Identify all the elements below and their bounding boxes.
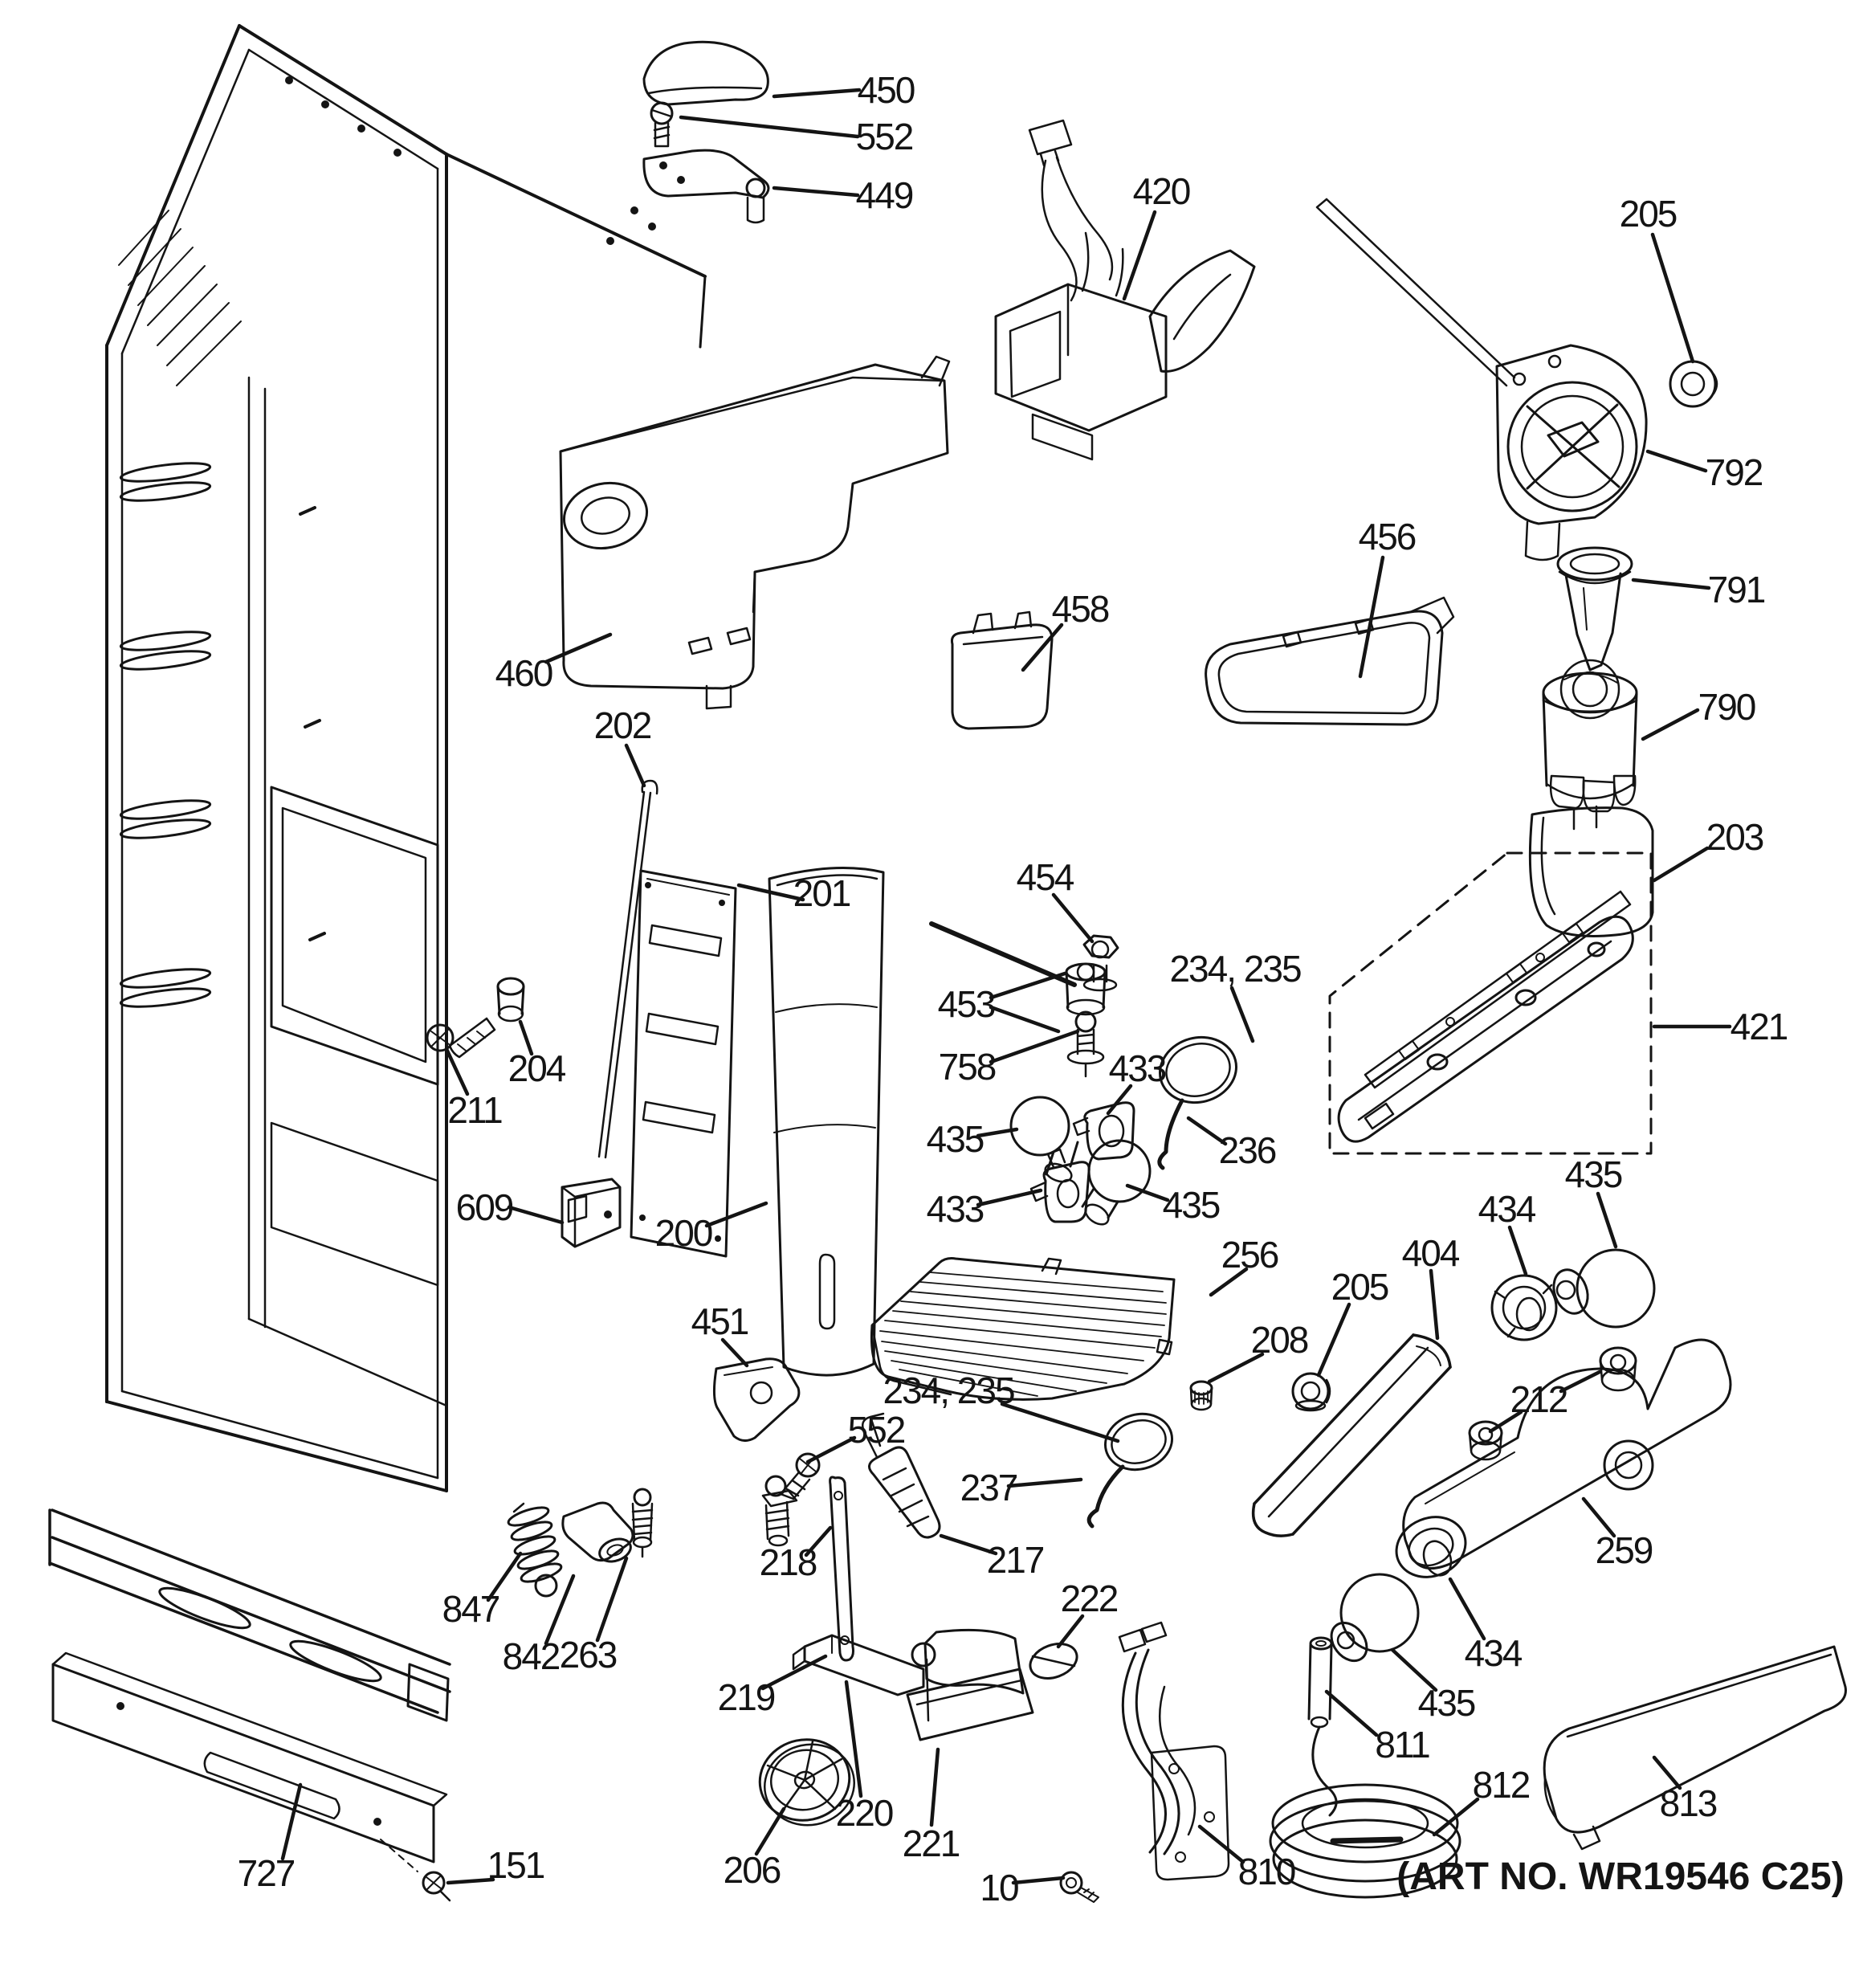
- callout-label-435-c: 435: [1565, 1153, 1622, 1195]
- callout-label-10: 10: [980, 1867, 1018, 1908]
- callout-leader-450: [774, 90, 859, 96]
- callout-label-151: 151: [487, 1844, 544, 1886]
- part-cabinet-floor-1: [122, 1391, 438, 1478]
- part-trim-stud-1: [1428, 1055, 1447, 1069]
- part-shelf-bracket-4b: [120, 985, 210, 1010]
- part-trim-stud-3: [1588, 943, 1604, 956]
- part-corner-dot-1: [630, 206, 638, 214]
- part-bracket-451: [714, 1359, 798, 1441]
- part-nut-208-body: [1191, 1388, 1212, 1404]
- callout-label-234-235-a: 234, 235: [1169, 948, 1300, 990]
- part-standpipe-hole: [1316, 1641, 1326, 1646]
- part-screw-10-head: [1061, 1872, 1082, 1893]
- part-bulb-435d: [1341, 1574, 1418, 1651]
- callout-label-435-a: 435: [927, 1118, 984, 1160]
- callout-label-202: 202: [594, 704, 651, 746]
- part-trim-strip-line: [1359, 941, 1611, 1120]
- callout-leader-434-a: [1510, 1227, 1526, 1274]
- part-louver-hole-4: [715, 1235, 721, 1242]
- part-top-face-dot-1: [285, 76, 293, 84]
- part-base-grille-line: [1567, 1655, 1831, 1737]
- part-socket-434a-cup: [1517, 1298, 1541, 1330]
- part-center-cover: [769, 868, 883, 1376]
- part-cabinet-recess-outer: [271, 787, 438, 1084]
- part-filter-bottom: [1547, 784, 1633, 798]
- part-filter-body-r: [1633, 694, 1637, 786]
- part-air-duct-outer: [561, 365, 948, 688]
- part-hatch-3: [138, 247, 193, 305]
- part-switch-609-btn: [569, 1196, 586, 1222]
- part-cabinet-inner-left-slant: [122, 50, 249, 353]
- part-bracket-451-hole: [751, 1382, 772, 1403]
- callout-leader-10: [1013, 1878, 1063, 1883]
- part-grommet-top-hole: [1682, 373, 1704, 395]
- callout-leader-420: [1124, 212, 1155, 299]
- callout-label-205-top: 205: [1620, 193, 1677, 235]
- part-vent-spoke-5: [805, 1780, 835, 1809]
- part-shelf-bracket-2a: [120, 628, 210, 654]
- callout-leader-792: [1648, 451, 1706, 471]
- callout-label-813: 813: [1660, 1782, 1717, 1824]
- callout-label-236: 236: [1219, 1129, 1276, 1171]
- callout-leader-454: [1054, 895, 1092, 941]
- part-shelf-bracket-3a: [120, 797, 210, 823]
- part-screw-10-shaft: [1078, 1888, 1099, 1902]
- part-fill-tube: [1317, 199, 1514, 386]
- part-cabinet-recess-inner: [283, 808, 426, 1062]
- part-base-rail-slot-1: [156, 1581, 253, 1635]
- part-grommet-mid-hole: [1302, 1382, 1319, 1400]
- art-number: (ART NO. WR19546 C25): [1396, 1855, 1844, 1898]
- part-cabinet-bottom-edge: [107, 1402, 446, 1491]
- part-socket-434b-cup: [1419, 1537, 1456, 1580]
- part-cabinet-floor-2: [249, 1319, 446, 1406]
- part-screw-552-top-slot: [652, 110, 671, 116]
- part-icemaker-window: [1010, 312, 1060, 397]
- part-grommet-212a-hole: [1611, 1355, 1625, 1370]
- callout-label-435-b: 435: [1163, 1184, 1220, 1226]
- callout-leader-203: [1654, 848, 1707, 880]
- part-center-cover-arc-2: [774, 1125, 875, 1133]
- callout-leader-200: [707, 1203, 766, 1226]
- callout-label-201: 201: [793, 872, 850, 914]
- part-grille-hatch-2: [920, 1282, 1166, 1303]
- callout-leader-206: [756, 1809, 784, 1854]
- part-icemaker-wire-3: [1082, 233, 1123, 296]
- part-door-stop: [644, 42, 768, 104]
- part-screw-10-hole: [1066, 1878, 1076, 1888]
- callout-leader-263: [597, 1558, 626, 1640]
- part-hinge-pin-collar: [747, 179, 764, 197]
- part-sleeve-204-top: [498, 978, 524, 994]
- part-filter-head-tab: [1526, 522, 1559, 560]
- callout-leader-435-c: [1598, 1194, 1616, 1247]
- part-cabinet-top-edge: [239, 26, 446, 154]
- callout-leader-460: [546, 635, 610, 662]
- part-strap-219: [830, 1477, 854, 1660]
- callout-label-811: 811: [1375, 1724, 1429, 1766]
- part-kick-panel-hole-2: [373, 1818, 381, 1826]
- callout-leader-758: [991, 1031, 1078, 1062]
- part-tube-810-hole-2: [1205, 1812, 1214, 1822]
- part-cabinet-floor-recess: [271, 1123, 438, 1285]
- part-filter-head-hole-2: [1549, 356, 1560, 367]
- part-bulb-435c: [1577, 1250, 1654, 1327]
- part-standpipe-top: [1311, 1638, 1331, 1649]
- part-icemaker-body: [996, 284, 1166, 431]
- callout-label-810: 810: [1238, 1851, 1295, 1892]
- part-oring-lower-tail: [1089, 1467, 1123, 1526]
- callout-label-259: 259: [1596, 1529, 1653, 1571]
- part-lamp-cover-key: [1604, 1441, 1653, 1489]
- part-plunger-263-tip: [634, 1489, 650, 1505]
- part-tube-union-top: [1066, 964, 1105, 980]
- part-switch-609-top: [562, 1187, 620, 1247]
- part-bulb-435a: [1011, 1097, 1069, 1155]
- part-corner-dot-2: [648, 222, 656, 231]
- part-socket-433b-cup: [1058, 1180, 1078, 1207]
- part-tube-frame-inner: [1219, 623, 1429, 713]
- part-socket-433b: [1044, 1162, 1089, 1222]
- part-air-duct-opening: [558, 476, 653, 556]
- callout-label-434-a: 434: [1478, 1188, 1536, 1230]
- part-tube-810-conn-1: [1119, 1630, 1145, 1651]
- callout-label-791: 791: [1708, 569, 1765, 610]
- part-hinge-hole-1: [659, 161, 667, 169]
- callout-label-203: 203: [1706, 816, 1763, 858]
- callout-label-435-d: 435: [1418, 1682, 1475, 1724]
- part-top-face-dot-4: [393, 149, 402, 157]
- part-socket-434a: [1492, 1276, 1556, 1340]
- part-hinge-hole-2: [677, 176, 685, 184]
- callout-leader-202: [626, 745, 644, 786]
- part-bulb-435c-tip: [1557, 1281, 1575, 1299]
- callout-leader-237: [1009, 1480, 1081, 1486]
- part-pcb-hole-2: [1536, 953, 1544, 961]
- part-kick-panel-hole-1: [116, 1702, 124, 1710]
- part-coil-1: [1273, 1785, 1457, 1862]
- part-sleeve-204-base: [499, 1006, 523, 1021]
- part-strap-219-hole-1: [834, 1492, 842, 1500]
- callout-label-263: 263: [560, 1634, 617, 1676]
- part-auger-217: [869, 1447, 940, 1537]
- part-tube-810-conn-2: [1142, 1623, 1166, 1642]
- part-cabinet-inner-top: [249, 50, 438, 169]
- callout-leader-205-mid: [1319, 1304, 1349, 1375]
- callout-leader-453-1: [991, 974, 1065, 998]
- part-lamp-shade-bottom: [1293, 1367, 1450, 1534]
- callout-label-212: 212: [1510, 1378, 1567, 1420]
- part-top-face-dot-3: [357, 125, 365, 133]
- part-louver-hole-3: [639, 1214, 646, 1221]
- callout-label-220: 220: [836, 1792, 893, 1834]
- callout-leader-433-a: [1108, 1086, 1131, 1113]
- callout-label-421: 421: [1731, 1006, 1788, 1047]
- callout-leader-453-2: [991, 1007, 1058, 1031]
- part-icemaker-wire-2: [1057, 157, 1112, 280]
- callout-leader-449: [774, 188, 858, 195]
- callout-label-456: 456: [1359, 516, 1416, 557]
- callout-label-234-235-b: 234, 235: [883, 1370, 1013, 1411]
- part-tube-frame-outer: [1206, 611, 1442, 725]
- callout-leader-434-b: [1450, 1579, 1484, 1639]
- callout-label-256: 256: [1221, 1234, 1278, 1276]
- part-grille-tab: [1042, 1259, 1061, 1274]
- callout-label-200: 200: [655, 1212, 712, 1254]
- part-duct-cover-line: [964, 637, 1042, 644]
- part-top-face-dot-2: [321, 100, 329, 108]
- callout-label-758: 758: [939, 1046, 996, 1088]
- part-lamp-shade-inner: [1269, 1348, 1428, 1517]
- part-coil-center: [1333, 1839, 1400, 1841]
- part-hatch-5: [157, 284, 217, 345]
- part-air-duct-top-line: [561, 378, 944, 451]
- part-cabinet-right-wall-end: [700, 276, 705, 347]
- part-screw-151-tip: [440, 1891, 450, 1900]
- callout-label-205-mid: 205: [1331, 1266, 1388, 1308]
- part-lever-842-roller2: [606, 1543, 625, 1557]
- part-grommet-top: [1670, 361, 1715, 406]
- callout-label-420: 420: [1133, 170, 1190, 212]
- callout-label-434-b: 434: [1465, 1632, 1523, 1674]
- part-center-cover-slot: [820, 1255, 834, 1329]
- part-icemaker-connector: [1029, 120, 1071, 165]
- callout-leader-811: [1327, 1692, 1376, 1735]
- part-socket-434a-tick-3: [1508, 1329, 1514, 1337]
- callout-label-847: 847: [442, 1588, 499, 1630]
- part-switch-609-dot: [604, 1210, 612, 1219]
- part-oval-222-line: [1033, 1656, 1074, 1666]
- part-hatch-4: [148, 266, 205, 325]
- callout-label-211: 211: [447, 1089, 502, 1131]
- part-standpipe-body: [1309, 1645, 1331, 1719]
- part-dispenser-knob: [912, 1643, 935, 1666]
- callout-leader-790: [1643, 710, 1698, 739]
- part-air-duct-opening2: [578, 493, 633, 538]
- part-icemaker-wire-1: [1042, 161, 1077, 300]
- part-grille-hatch-5: [893, 1311, 1161, 1337]
- part-louver-hole-1: [645, 882, 651, 888]
- part-louver-panel: [631, 871, 736, 1256]
- part-funnel-rim2: [1571, 554, 1619, 574]
- callout-label-208: 208: [1251, 1319, 1308, 1361]
- part-bulb-435c-neck: [1548, 1265, 1594, 1318]
- part-funnel-line: [1584, 588, 1587, 630]
- callout-label-842: 842: [503, 1635, 560, 1677]
- part-louver-2: [646, 1014, 718, 1044]
- part-hatch-6: [167, 303, 229, 365]
- callout-leader-791: [1633, 580, 1709, 588]
- callout-leader-810: [1200, 1827, 1243, 1862]
- part-filter-foot-1: [1551, 776, 1584, 808]
- parts-diagram-svg: 4505524494202057927914567902034214602024…: [0, 0, 1863, 1988]
- callout-label-449: 449: [856, 174, 913, 216]
- part-standpipe-foot: [1311, 1717, 1327, 1727]
- part-shelf-bracket-1b: [120, 479, 210, 504]
- part-plunger-263-base: [634, 1537, 651, 1547]
- part-grille-hatch-3: [911, 1292, 1166, 1314]
- part-tube-810-plate: [1152, 1746, 1229, 1880]
- part-hinge-rod: [599, 781, 657, 1157]
- part-dispenser-rod: [927, 1659, 928, 1721]
- part-valve-218-body: [766, 1502, 789, 1539]
- part-funnel-body: [1566, 574, 1620, 670]
- part-screw-552-top-shaft: [654, 123, 669, 146]
- part-tube-union-hole: [1078, 964, 1094, 980]
- callout-leader-552-top: [681, 117, 858, 137]
- callout-label-454: 454: [1017, 856, 1074, 898]
- part-louver-1: [650, 925, 721, 956]
- callout-label-552-mid: 552: [848, 1409, 905, 1451]
- callout-leader-458: [1023, 625, 1062, 670]
- callout-label-453: 453: [938, 983, 995, 1025]
- part-lamp-shade-right: [1413, 1335, 1450, 1367]
- part-grille-hatch-4: [901, 1301, 1164, 1325]
- callout-label-217: 217: [987, 1539, 1044, 1581]
- callout-leader-451: [723, 1340, 747, 1365]
- part-wall-slot-3: [310, 933, 324, 940]
- part-plunger-263-body: [633, 1504, 652, 1541]
- callout-label-458: 458: [1052, 588, 1109, 630]
- part-filter-swirl-2: [1573, 672, 1607, 706]
- callout-leader-609: [509, 1207, 562, 1223]
- callout-label-792: 792: [1706, 451, 1763, 493]
- callout-leader-221: [931, 1749, 938, 1825]
- part-filter-body-l: [1543, 694, 1547, 786]
- part-filter-head-hub: [1548, 423, 1598, 456]
- part-bulb-435b: [1089, 1141, 1150, 1202]
- part-cabinet-left-slant: [107, 26, 239, 345]
- part-spring-847-tail: [514, 1504, 524, 1512]
- part-air-duct-slot-1: [689, 638, 711, 654]
- part-lamp-cover-outline: [1404, 1340, 1731, 1568]
- part-wall-slot-2: [305, 720, 320, 727]
- callout-leader-433-b: [978, 1190, 1041, 1205]
- callout-label-433-a: 433: [1109, 1047, 1166, 1089]
- part-shelf-bracket-1a: [120, 459, 210, 485]
- part-tube-810-hole-1: [1169, 1764, 1179, 1774]
- part-valve-nut-ring: [1092, 941, 1108, 957]
- part-valve-758-flange: [1068, 1051, 1103, 1063]
- part-kick-panel: [53, 1664, 434, 1862]
- part-kick-panel-flange: [53, 1653, 446, 1806]
- part-bracket-451-line: [724, 1367, 773, 1375]
- part-lamp-shade-left: [1254, 1504, 1293, 1536]
- part-hatch-7: [177, 321, 241, 386]
- part-louver-panel-line: [647, 879, 729, 895]
- part-shelf-bracket-4a: [120, 965, 210, 991]
- part-filter-head-hole-1: [1514, 374, 1525, 385]
- callout-label-433-b: 433: [927, 1188, 984, 1230]
- callout-label-219: 219: [718, 1676, 775, 1718]
- callout-label-218: 218: [760, 1541, 817, 1583]
- part-lamp-cover-line: [1425, 1452, 1514, 1504]
- part-hinge-pin: [748, 198, 764, 222]
- callout-label-450: 450: [858, 69, 915, 111]
- part-filter-cover-lip: [1542, 818, 1555, 914]
- part-shelf-bracket-3b: [120, 816, 210, 842]
- part-grille-hatch-6: [885, 1321, 1155, 1348]
- part-corner-dot-3: [606, 237, 614, 245]
- callout-leader-151: [448, 1880, 493, 1883]
- callout-label-790: 790: [1698, 686, 1755, 728]
- part-icemaker-shroud-line: [1174, 275, 1230, 339]
- callout-label-460: 460: [495, 652, 552, 694]
- callout-label-206: 206: [724, 1849, 781, 1891]
- part-screw-211-shaft: [450, 1018, 495, 1057]
- part-socket-434b: [1388, 1507, 1475, 1587]
- parts-diagram: 4505524494202057927914567902034214602024…: [0, 0, 1863, 1988]
- part-door-stop-lip: [649, 88, 761, 93]
- part-filter-foot-3: [1614, 776, 1635, 805]
- callout-label-812: 812: [1473, 1764, 1530, 1806]
- callout-leader-222: [1058, 1616, 1082, 1647]
- part-louver-hole-2: [719, 900, 725, 906]
- part-oring-upper-2: [1160, 1037, 1236, 1104]
- part-louver-3: [643, 1102, 715, 1133]
- callout-label-404: 404: [1402, 1232, 1460, 1274]
- callout-leader-234-235-a: [1232, 988, 1253, 1041]
- part-shelf-bracket-2b: [120, 647, 210, 673]
- callout-leader-404: [1431, 1271, 1437, 1338]
- part-base-rail-2: [52, 1537, 450, 1692]
- part-center-cover-arc-1: [776, 1004, 877, 1012]
- part-air-duct-slot-2: [728, 628, 750, 644]
- part-nut-208-top: [1191, 1382, 1212, 1394]
- part-screw-151-cross: [426, 1876, 441, 1889]
- part-wall-slot-1: [300, 508, 315, 514]
- callout-leader-205-top: [1653, 235, 1693, 361]
- part-trim-slot: [1365, 1104, 1393, 1129]
- callout-label-222: 222: [1061, 1578, 1118, 1619]
- callout-label-552-top: 552: [856, 116, 913, 157]
- callout-label-221: 221: [903, 1823, 960, 1864]
- callout-label-204: 204: [508, 1047, 566, 1089]
- part-socket-434a-tick-1: [1495, 1292, 1505, 1298]
- callout-leader-727: [283, 1785, 300, 1859]
- part-cabinet-right-wall-edge: [446, 154, 705, 276]
- callout-label-451: 451: [691, 1300, 748, 1342]
- callout-label-237: 237: [960, 1467, 1017, 1508]
- part-tube-810-hole-3: [1176, 1852, 1185, 1862]
- part-slide-rail-end: [793, 1647, 805, 1669]
- callout-label-727: 727: [238, 1852, 295, 1894]
- part-base-rail-bracket: [408, 1664, 448, 1721]
- part-hinge-bracket: [644, 150, 768, 198]
- part-slide-rail: [805, 1635, 923, 1695]
- part-filter-cover: [1530, 808, 1653, 937]
- callout-leader-234-235-b: [1002, 1404, 1118, 1441]
- part-oring-upper-tail: [1160, 1100, 1182, 1168]
- callout-label-609: 609: [456, 1186, 513, 1228]
